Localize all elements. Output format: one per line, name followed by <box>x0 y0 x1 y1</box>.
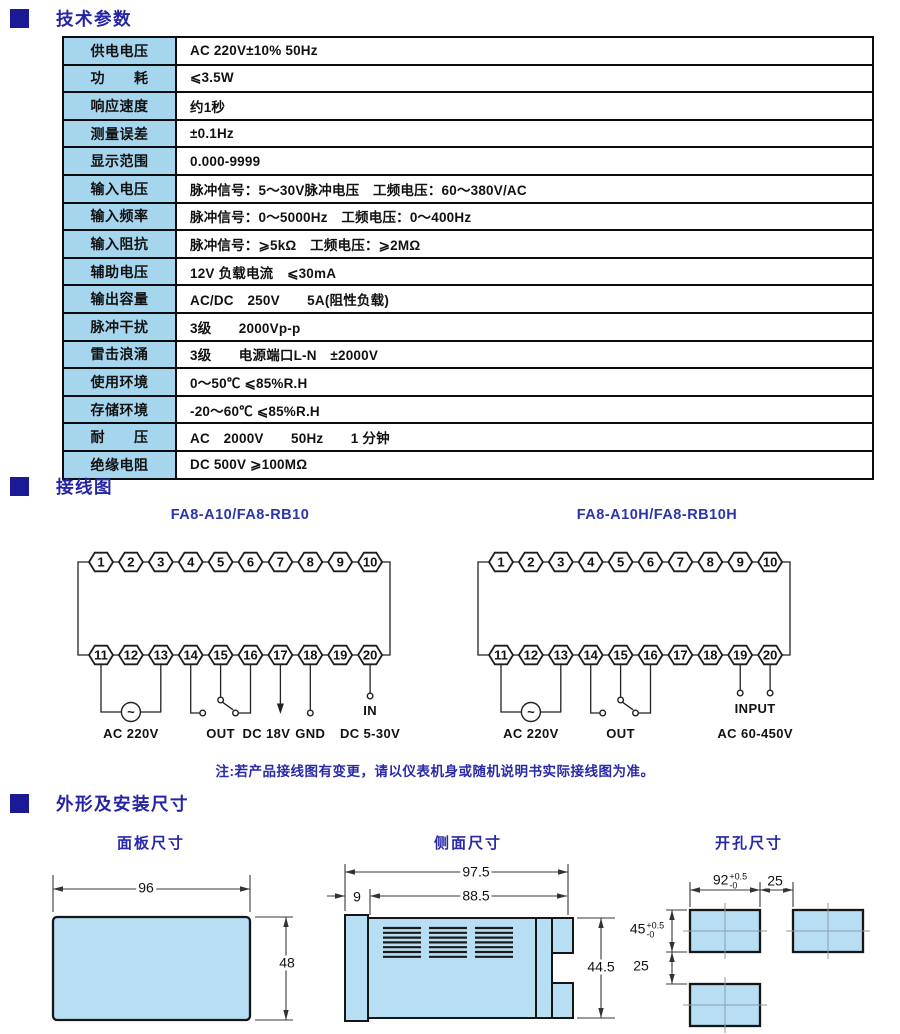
terminal-number: 1 <box>97 555 104 570</box>
spec-label: 供电电压 <box>63 37 176 65</box>
terminal-number: 1 <box>497 555 504 570</box>
terminal-number: 18 <box>703 648 717 663</box>
spec-value: ±0.1Hz <box>176 120 873 148</box>
terminal-number: 8 <box>707 555 714 570</box>
terminal-number: 3 <box>557 555 564 570</box>
switch-pole-icon <box>218 697 224 703</box>
spec-value: 约1秒 <box>176 92 873 120</box>
spec-value: 12V 负载电流 ⩽30mA <box>176 258 873 286</box>
terminal-number: 4 <box>187 555 195 570</box>
terminal-number: 20 <box>363 648 377 663</box>
side-drawing-svg <box>325 858 620 1034</box>
terminal-number: 9 <box>337 555 344 570</box>
side-clip-bottom <box>552 983 573 1018</box>
spec-value: 3级 电源端口L-N ±2000V <box>176 341 873 369</box>
side-rear-rail <box>536 918 552 1018</box>
terminal-number: 3 <box>157 555 164 570</box>
terminal-number: 7 <box>277 555 284 570</box>
pin-label: DC 5-30V <box>340 726 400 741</box>
terminal-number: 6 <box>647 555 654 570</box>
terminal-number: 19 <box>733 648 747 663</box>
specs-table-body: 供电电压AC 220V±10% 50Hz功 耗⩽3.5W响应速度约1秒测量误差±… <box>63 37 873 479</box>
spec-value: DC 500V ⩾100MΩ <box>176 451 873 479</box>
dim-panel-width: 96 <box>136 881 156 896</box>
section-header-wiring: 接线图 <box>10 474 113 499</box>
terminal-number: 6 <box>247 555 254 570</box>
spec-row: 功 耗⩽3.5W <box>63 65 873 93</box>
diagram-title-1: FA8-A10/FA8-RB10 <box>60 507 420 523</box>
wiring-note: 注:若产品接线图有变更，请以仪表机身或随机说明书实际接线图为准。 <box>0 760 870 780</box>
dim-cutout-width: 92+0.5-0 <box>711 873 749 890</box>
spec-row: 响应速度约1秒 <box>63 92 873 120</box>
spec-label: 输入阻抗 <box>63 230 176 258</box>
spec-value: 3级 2000Vp-p <box>176 313 873 341</box>
dim-cutout-height: 45+0.5-0 <box>628 922 666 939</box>
terminal-number: 13 <box>554 648 568 663</box>
ac-tilde: ~ <box>527 705 535 720</box>
dim-value: 92 <box>713 872 729 888</box>
terminal-number: 5 <box>617 555 624 570</box>
dim-side-bezel: 9 <box>351 890 363 905</box>
dim-tolerance: +0.5-0 <box>646 922 664 939</box>
spec-row: 使用环境0～50℃ ⩽85%R.H <box>63 368 873 396</box>
spec-label: 存储环境 <box>63 396 176 424</box>
spec-value: -20～60℃ ⩽85%R.H <box>176 396 873 424</box>
terminal-number: 7 <box>677 555 684 570</box>
spec-label: 脉冲干扰 <box>63 313 176 341</box>
spec-label: 功 耗 <box>63 65 176 93</box>
spec-row: 辅助电压12V 负载电流 ⩽30mA <box>63 258 873 286</box>
section-bullet-icon <box>10 477 29 496</box>
contact-icon <box>233 710 239 716</box>
pin-icon <box>367 693 373 699</box>
spec-row: 绝缘电阻DC 500V ⩾100MΩ <box>63 451 873 479</box>
spec-row: 显示范围0.000-9999 <box>63 147 873 175</box>
panel-drawing-svg <box>30 858 310 1034</box>
dim-side-depth-body: 88.5 <box>460 889 491 904</box>
ac-label: AC 220V <box>503 726 559 741</box>
spec-row: 脉冲干扰3级 2000Vp-p <box>63 313 873 341</box>
ac-tilde: ~ <box>127 705 135 720</box>
terminal-number: 13 <box>154 648 168 663</box>
terminal-number: 9 <box>737 555 744 570</box>
spec-value: AC 220V±10% 50Hz <box>176 37 873 65</box>
dim-side-height: 44.5 <box>585 960 616 975</box>
cutout-size-title: 开孔尺寸 <box>659 832 839 853</box>
pin-label: IN <box>363 703 377 718</box>
terminal-number: 19 <box>333 648 347 663</box>
pin-label: GND <box>295 726 325 741</box>
spec-label: 辅助电压 <box>63 258 176 286</box>
pin-label: INPUT <box>735 701 776 716</box>
side-clip-top <box>552 918 573 953</box>
section-bullet-icon <box>10 794 29 813</box>
spec-label: 使用环境 <box>63 368 176 396</box>
cutout-drawing-svg <box>620 858 900 1034</box>
terminal-number: 2 <box>127 555 134 570</box>
panel-front-face <box>53 917 250 1020</box>
spec-label: 显示范围 <box>63 147 176 175</box>
spec-row: 输入阻抗脉冲信号：⩾5kΩ 工频电压：⩾2MΩ <box>63 230 873 258</box>
spec-value: 0.000-9999 <box>176 147 873 175</box>
spec-value: 脉冲信号：⩾5kΩ 工频电压：⩾2MΩ <box>176 230 873 258</box>
terminal-number: 10 <box>363 555 377 570</box>
spec-row: 输出容量AC/DC 250V 5A(阻性负载) <box>63 285 873 313</box>
terminal-number: 8 <box>307 555 314 570</box>
pin-icon <box>308 710 314 716</box>
relay-label: OUT <box>206 726 235 741</box>
specs-table: 供电电压AC 220V±10% 50Hz功 耗⩽3.5W响应速度约1秒测量误差±… <box>62 36 874 480</box>
wiring-diagram-2: 1234567891011121314151617181920~AC 220VO… <box>460 545 800 750</box>
arrow-label: DC 18V <box>242 726 290 741</box>
spec-row: 输入电压脉冲信号：5～30V脉冲电压 工频电压：60～380V/AC <box>63 175 873 203</box>
terminal-number: 17 <box>673 648 687 663</box>
dim-cutout-gap-v: 25 <box>631 959 651 974</box>
terminal-number: 12 <box>524 648 538 663</box>
section-header-dimensions: 外形及安装尺寸 <box>10 791 189 816</box>
terminal-number: 2 <box>527 555 534 570</box>
terminal-number: 12 <box>124 648 138 663</box>
dim-value: 45 <box>630 921 646 937</box>
spec-row: 存储环境-20～60℃ ⩽85%R.H <box>63 396 873 424</box>
relay-label: OUT <box>606 726 635 741</box>
terminal-number: 15 <box>213 648 227 663</box>
pin-icon <box>737 690 743 696</box>
spec-value: 脉冲信号：5～30V脉冲电压 工频电压：60～380V/AC <box>176 175 873 203</box>
contact-icon <box>200 710 206 716</box>
section-bullet-icon <box>10 9 29 28</box>
spec-label: 测量误差 <box>63 120 176 148</box>
spec-label: 输出容量 <box>63 285 176 313</box>
section-title-wiring: 接线图 <box>56 474 113 499</box>
terminal-number: 10 <box>763 555 777 570</box>
terminal-number: 17 <box>273 648 287 663</box>
terminal-number: 15 <box>613 648 627 663</box>
contact-icon <box>633 710 639 716</box>
terminal-number: 14 <box>583 648 598 663</box>
spec-row: 耐 压AC 2000V 50Hz 1 分钟 <box>63 423 873 451</box>
section-title-specs: 技术参数 <box>56 6 132 31</box>
terminal-number: 16 <box>243 648 257 663</box>
terminal-number: 11 <box>494 648 508 663</box>
arrow-down-icon <box>277 704 284 715</box>
datasheet-page: 技术参数 供电电压AC 220V±10% 50Hz功 耗⩽3.5W响应速度约1秒… <box>0 0 900 1034</box>
spec-label: 输入频率 <box>63 203 176 231</box>
switch-pole-icon <box>618 697 624 703</box>
side-size-title: 侧面尺寸 <box>378 832 558 853</box>
terminal-number: 4 <box>587 555 595 570</box>
section-header-specs: 技术参数 <box>10 6 132 31</box>
section-title-dimensions: 外形及安装尺寸 <box>56 791 189 816</box>
terminal-number: 18 <box>303 648 317 663</box>
panel-size-title: 面板尺寸 <box>61 832 241 853</box>
dim-panel-height: 48 <box>277 956 297 971</box>
dim-side-depth-total: 97.5 <box>460 865 491 880</box>
side-bezel <box>345 915 368 1021</box>
spec-label: 雷击浪涌 <box>63 341 176 369</box>
terminal-number: 5 <box>217 555 224 570</box>
spec-row: 供电电压AC 220V±10% 50Hz <box>63 37 873 65</box>
dim-tolerance: +0.5-0 <box>729 873 747 890</box>
spec-value: 0～50℃ ⩽85%R.H <box>176 368 873 396</box>
wiring-diagram-1: 1234567891011121314151617181920~AC 220VO… <box>60 545 420 750</box>
spec-label: 耐 压 <box>63 423 176 451</box>
pin-label: AC 60-450V <box>717 726 793 741</box>
diagram-title-2: FA8-A10H/FA8-RB10H <box>497 507 817 523</box>
ac-label: AC 220V <box>103 726 159 741</box>
pin-icon <box>767 690 773 696</box>
dim-cutout-gap-h: 25 <box>765 874 785 889</box>
terminal-number: 20 <box>763 648 777 663</box>
spec-value: ⩽3.5W <box>176 65 873 93</box>
terminal-number: 14 <box>183 648 198 663</box>
spec-row: 雷击浪涌3级 电源端口L-N ±2000V <box>63 341 873 369</box>
contact-icon <box>600 710 606 716</box>
spec-label: 响应速度 <box>63 92 176 120</box>
spec-value: AC 2000V 50Hz 1 分钟 <box>176 423 873 451</box>
spec-value: AC/DC 250V 5A(阻性负载) <box>176 285 873 313</box>
vent-slots <box>383 928 513 957</box>
spec-row: 输入频率脉冲信号：0～5000Hz 工频电压：0～400Hz <box>63 203 873 231</box>
terminal-number: 11 <box>94 648 108 663</box>
spec-value: 脉冲信号：0～5000Hz 工频电压：0～400Hz <box>176 203 873 231</box>
spec-row: 测量误差±0.1Hz <box>63 120 873 148</box>
terminal-number: 16 <box>643 648 657 663</box>
spec-label: 输入电压 <box>63 175 176 203</box>
